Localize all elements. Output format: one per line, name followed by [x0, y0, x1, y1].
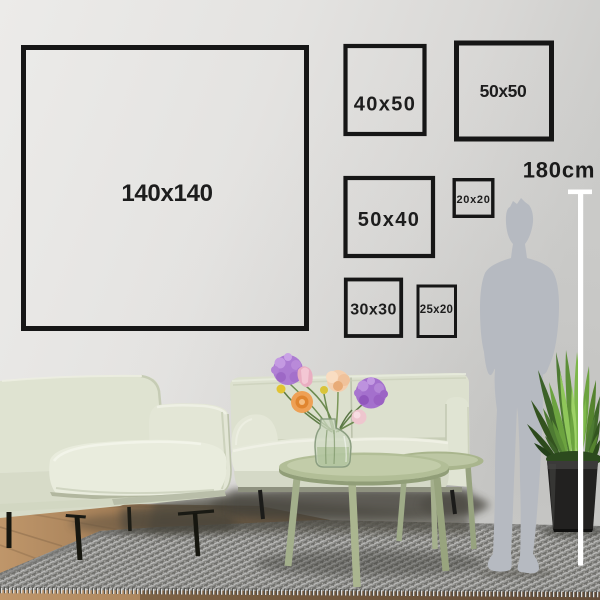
svg-text:25x20: 25x20: [420, 304, 453, 316]
svg-text:40x50: 40x50: [354, 94, 417, 116]
svg-text:180cm: 180cm: [523, 158, 596, 183]
svg-text:30x30: 30x30: [350, 302, 397, 319]
svg-text:140x140: 140x140: [121, 180, 212, 207]
svg-text:20x20: 20x20: [456, 194, 490, 206]
svg-text:50x50: 50x50: [480, 81, 527, 101]
svg-text:50x40: 50x40: [358, 209, 421, 231]
